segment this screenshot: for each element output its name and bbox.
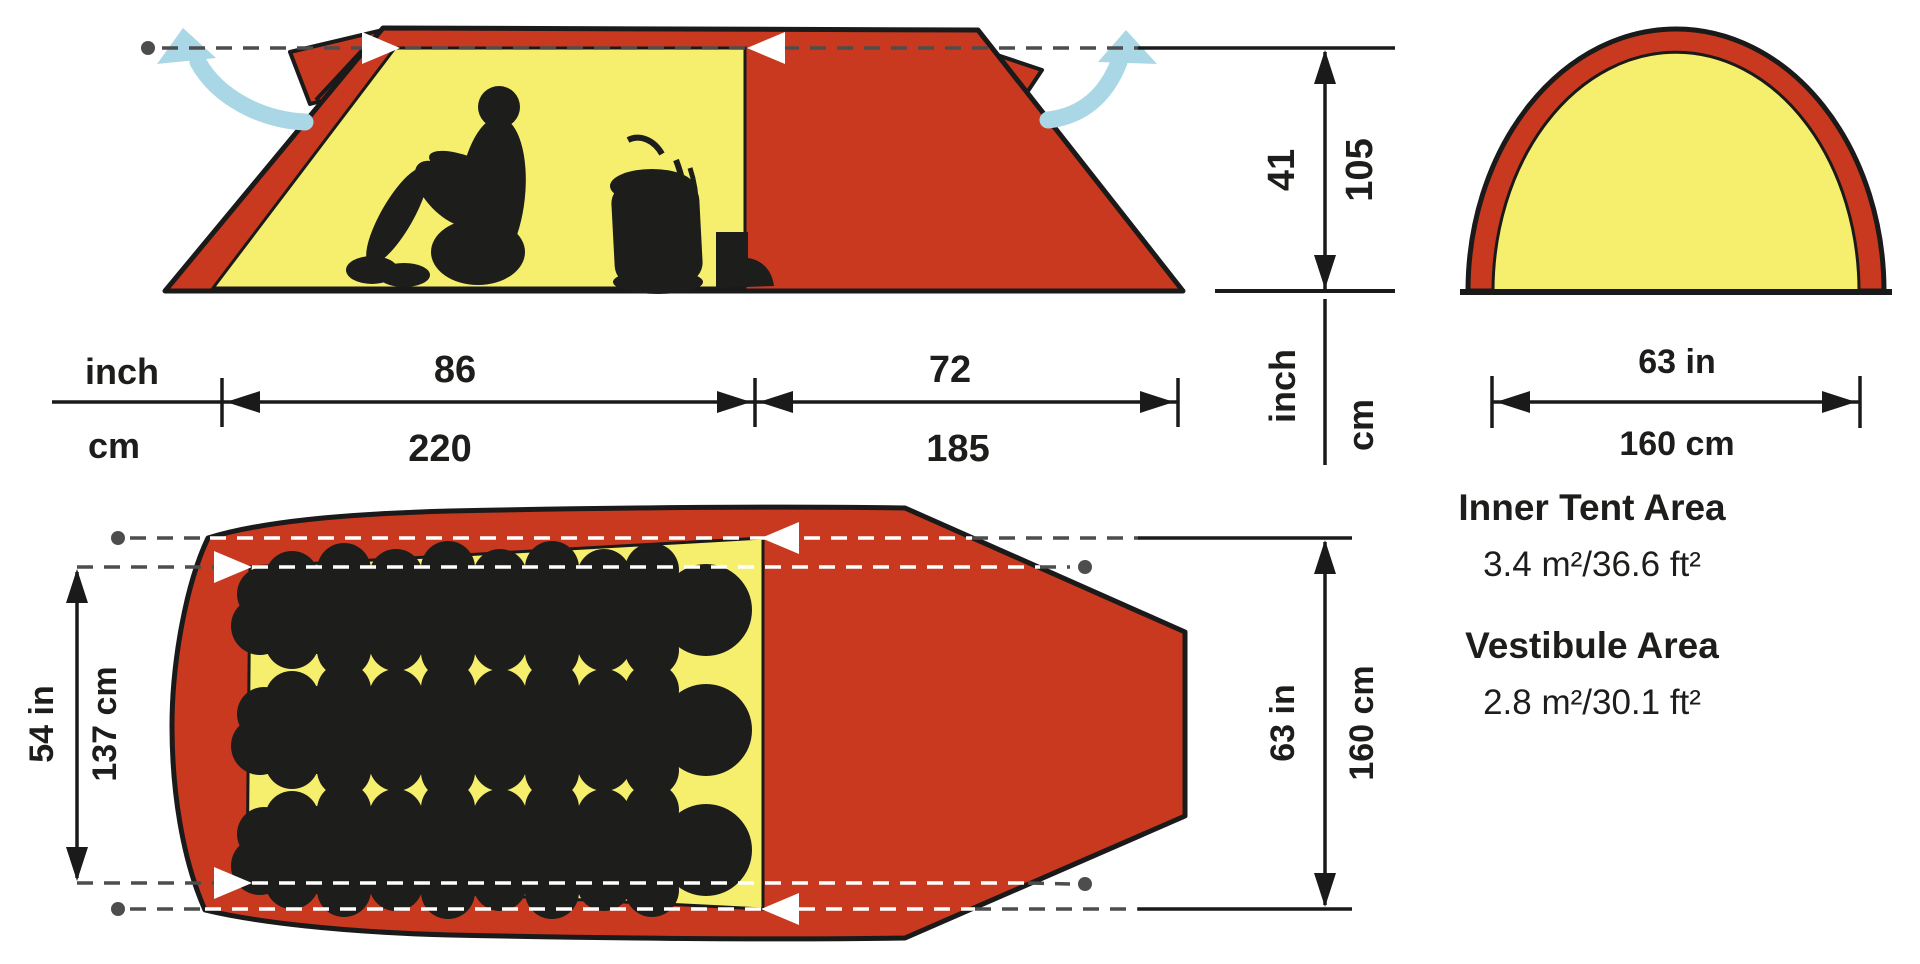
dim-arrow-icon xyxy=(1314,50,1336,84)
side-view xyxy=(141,28,1395,294)
dim-arrow-icon xyxy=(1314,255,1336,289)
tent-dimensions-diagram: inch cm 86 220 72 185 41 105 inch cm 63 … xyxy=(0,0,1920,964)
area-info: Inner Tent Area 3.4 m²/36.6 ft² Vestibul… xyxy=(1458,487,1726,722)
diagram-canvas: inch cm 86 220 72 185 41 105 inch cm 63 … xyxy=(0,0,1920,964)
inner-area-title: Inner Tent Area xyxy=(1458,487,1726,528)
vestibule-length-inch: 72 xyxy=(929,349,971,391)
inner-width-cm: 137 cm xyxy=(86,666,124,781)
sleeping-bags xyxy=(231,541,752,919)
inner-length-cm: 220 xyxy=(408,428,471,470)
right-vent-arrow xyxy=(1048,30,1157,120)
inner-length-inch: 86 xyxy=(434,349,476,391)
dim-arrow-icon xyxy=(1140,391,1174,413)
dim-arrow-icon xyxy=(1822,391,1856,413)
dim-arrow-icon xyxy=(66,569,88,603)
end-width-inch: 63 in xyxy=(1638,343,1715,381)
sleeping-bag-silhouette xyxy=(231,661,752,799)
height-unit-cm: cm xyxy=(1340,399,1381,451)
dim-arrow-icon xyxy=(1496,391,1530,413)
dim-arrow-icon xyxy=(1314,540,1336,574)
left-vent-arrow xyxy=(157,28,305,122)
unit-inch-label: inch xyxy=(85,351,159,392)
end-width-dimension: 63 in 160 cm xyxy=(1492,343,1860,463)
top-view: 54 in 137 cm 63 in 160 cm xyxy=(23,507,1381,939)
end-view: 63 in 160 cm xyxy=(1460,29,1892,463)
dim-arrow-icon xyxy=(759,391,793,413)
outer-width-dimension: 63 in 160 cm xyxy=(1264,540,1381,907)
dim-arrow-icon xyxy=(226,391,260,413)
outer-width-inch: 63 in xyxy=(1264,684,1302,761)
vestibule-length-cm: 185 xyxy=(926,428,989,470)
sleeping-bag-silhouette xyxy=(231,781,752,919)
inner-width-inch: 54 in xyxy=(23,685,61,762)
inner-area-value: 3.4 m²/36.6 ft² xyxy=(1483,545,1701,584)
length-dimension: inch cm 86 220 72 185 xyxy=(52,349,1178,470)
height-cm-value: 105 xyxy=(1339,138,1381,201)
dim-arrow-icon xyxy=(717,391,751,413)
dim-arrow-icon xyxy=(1314,873,1336,907)
sleeping-bag-silhouette xyxy=(231,541,752,679)
end-width-cm: 160 cm xyxy=(1619,425,1734,463)
vestibule-area-title: Vestibule Area xyxy=(1465,625,1719,666)
inner-width-dimension: 54 in 137 cm xyxy=(23,569,124,881)
outer-width-cm: 160 cm xyxy=(1343,665,1381,780)
vestibule-area-value: 2.8 m²/30.1 ft² xyxy=(1483,683,1701,722)
height-dimension: 41 105 inch cm xyxy=(1215,50,1395,465)
height-unit-inch: inch xyxy=(1262,349,1303,423)
unit-cm-label: cm xyxy=(88,425,140,466)
height-inch-value: 41 xyxy=(1261,149,1303,191)
dim-arrow-icon xyxy=(66,847,88,881)
